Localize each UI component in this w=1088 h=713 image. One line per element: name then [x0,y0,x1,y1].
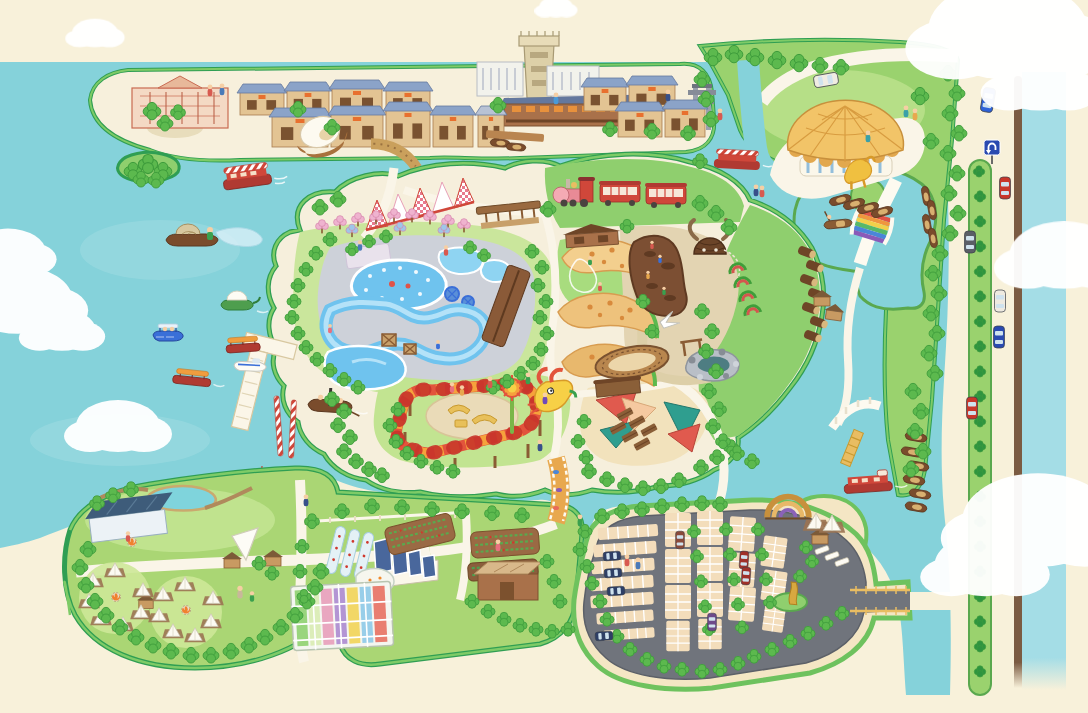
person-sprite [554,92,559,104]
person-sprite [237,586,242,599]
person-sprite [358,240,362,251]
person-sprite [760,185,765,197]
person-sprite [450,382,454,393]
person-sprite [636,557,641,569]
parkedCar-sprite [708,613,717,631]
person-sprite [598,282,602,291]
person-sprite [658,255,661,263]
parkedCar-sprite [604,568,622,578]
firepit-sprite [112,593,121,602]
butterfly-bridge [550,457,568,522]
person-sprite [126,531,130,542]
person-sprite [543,392,548,404]
person-sprite [754,184,759,196]
person-sprite [866,130,871,142]
person-sprite [496,539,501,551]
stallBlock-sprite [666,621,689,652]
person-sprite [208,84,213,96]
person-sprite [488,376,493,388]
cloud-sprite [534,0,577,17]
person-sprite [328,324,332,333]
person-sprite [913,108,918,120]
person-sprite [526,372,531,384]
person-sprite [444,245,448,256]
river-embankment [1014,76,1022,688]
parkedCar-sprite [603,551,621,561]
stallBlock-sprite [697,511,723,545]
stallBlock-sprite [728,516,756,552]
person-sprite [304,494,309,506]
stallBlock-sprite [665,585,691,619]
shop-building [383,102,433,147]
person-sprite [578,514,583,526]
person-sprite [220,83,225,95]
car-sprite [965,231,976,253]
car-sprite [1000,177,1011,199]
parkedCar-sprite [739,551,749,569]
parkedCar-sprite [741,567,751,585]
person-sprite [588,256,592,265]
canopy-boat [225,336,260,353]
person-sprite [904,105,909,117]
firepit-sprite [182,606,191,615]
car-sprite [994,326,1005,348]
car-sprite [995,290,1006,312]
person-sprite [250,591,254,602]
parkedCar-sprite [676,531,685,549]
water-play-park [318,235,536,389]
person-sprite [650,241,653,249]
parkedCar-sprite [595,631,613,641]
person-sprite [625,554,630,566]
person-sprite [646,271,649,279]
stallBlock-sprite [665,549,691,583]
car-sprite [967,397,978,419]
person-sprite [538,439,543,451]
illustrated-park-map [0,0,1088,713]
person-sprite [460,385,464,396]
river [1022,72,1066,690]
person-sprite [666,89,671,101]
shop-building [430,106,476,147]
person-sprite [436,340,440,349]
person-sprite [662,287,665,295]
parkedCar-sprite [607,586,625,596]
farm-barn [474,562,542,600]
person-sprite [718,108,723,120]
